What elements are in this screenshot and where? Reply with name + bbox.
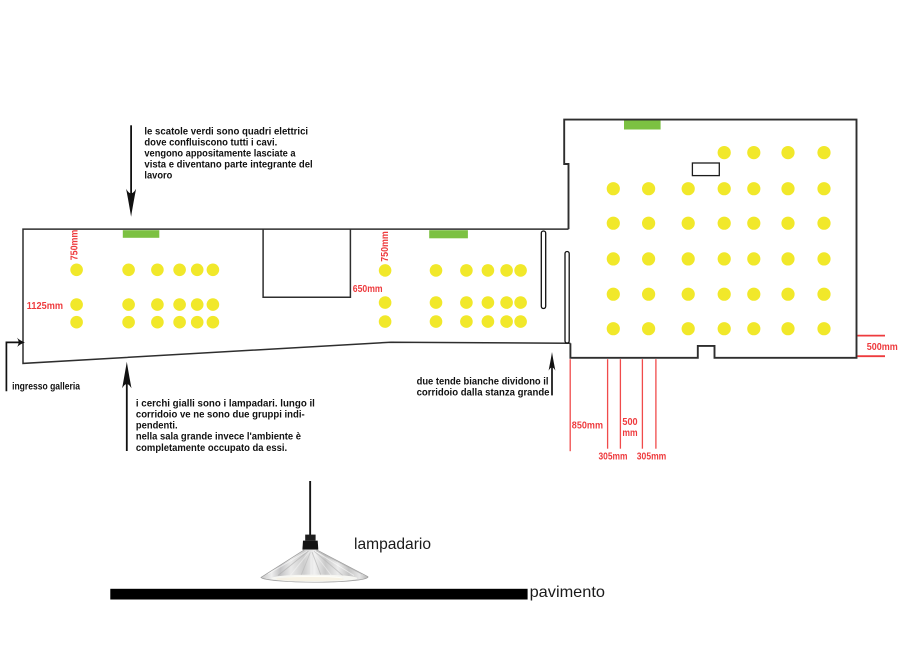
svg-text:500mm: 500mm [867, 341, 898, 353]
svg-text:corridoio dalla stanza grande: corridoio dalla stanza grande [417, 387, 550, 398]
svg-text:650mm: 650mm [353, 283, 383, 295]
svg-text:i cerchi gialli sono i lampada: i cerchi gialli sono i lampadari. lungo … [136, 398, 315, 409]
svg-text:dove confluiscono tutti i cavi: dove confluiscono tutti i cavi. [144, 137, 277, 148]
svg-text:305mm: 305mm [599, 451, 628, 463]
svg-text:750mm: 750mm [69, 230, 81, 261]
svg-text:completamente occupato da essi: completamente occupato da essi. [136, 443, 287, 454]
svg-text:corridoio ve ne sono due grupp: corridoio ve ne sono due gruppi indi- [136, 410, 305, 421]
svg-text:nella sala grande invece l'amb: nella sala grande invece l'ambiente è [136, 432, 302, 443]
svg-text:750mm: 750mm [379, 231, 391, 262]
svg-text:due tende bianche dividono il: due tende bianche dividono il [417, 377, 549, 388]
svg-text:305mm: 305mm [637, 451, 667, 463]
svg-text:pendenti.: pendenti. [136, 421, 178, 432]
svg-text:mm: mm [622, 427, 637, 439]
svg-text:vista e diventano parte integr: vista e diventano parte integrante del [144, 160, 313, 171]
svg-text:850mm: 850mm [572, 420, 603, 432]
svg-text:lavoro: lavoro [144, 171, 172, 182]
svg-text:pavimento: pavimento [530, 584, 605, 601]
svg-text:vengono appositamente lasciate: vengono appositamente lasciate a [144, 148, 296, 159]
svg-text:1125mm: 1125mm [27, 300, 63, 312]
svg-text:le scatole verdi sono quadri: le scatole verdi sono quadri elettrici [144, 126, 308, 137]
svg-text:ingresso galleria: ingresso galleria [12, 382, 80, 393]
svg-text:lampadario: lampadario [354, 536, 431, 553]
